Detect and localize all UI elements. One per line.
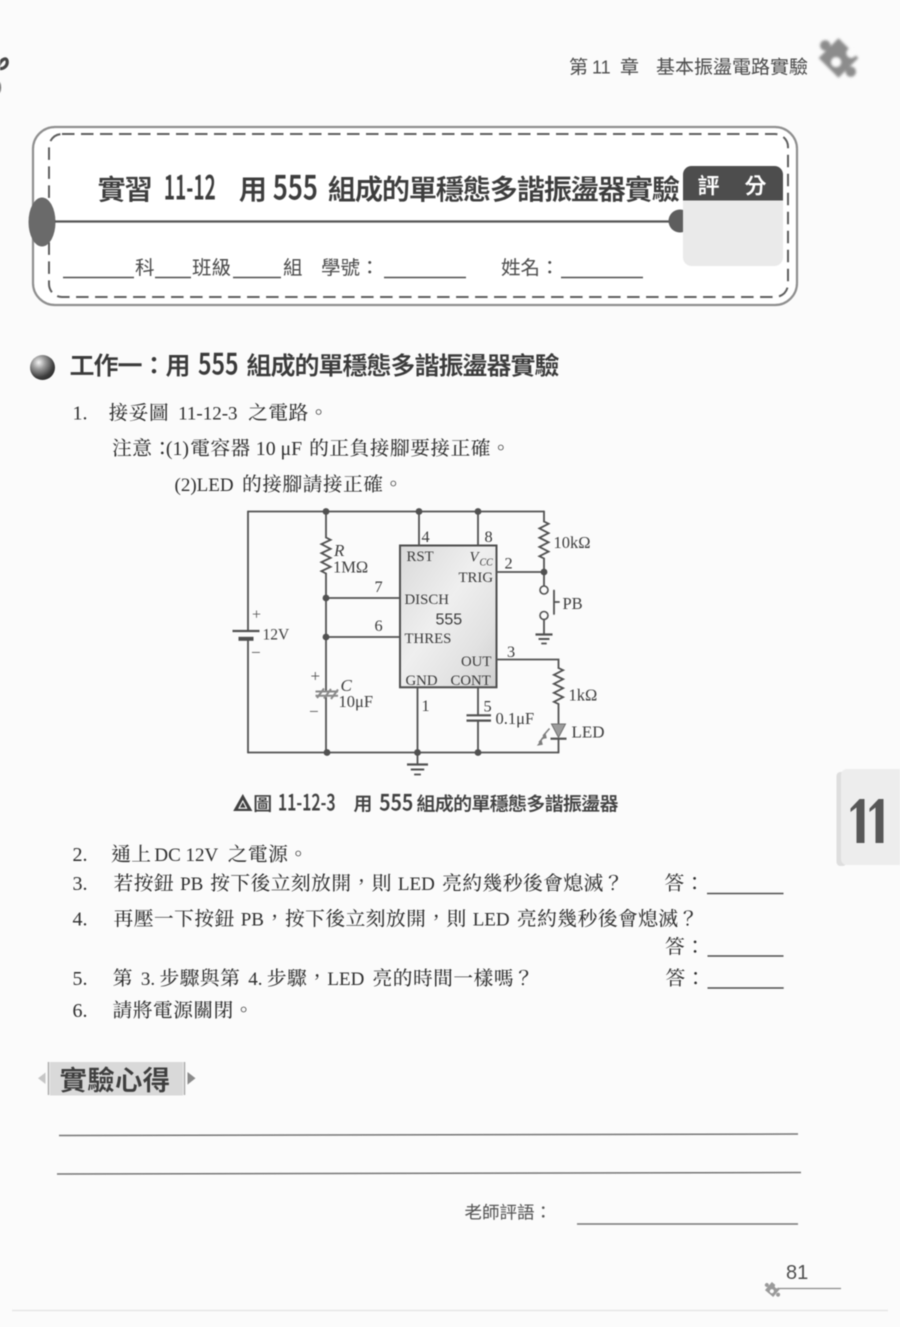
svg-text:DISCH: DISCH bbox=[405, 592, 450, 608]
svg-text:2: 2 bbox=[505, 554, 513, 573]
svg-text:DC 12V: DC 12V bbox=[154, 845, 218, 866]
svg-text:LED: LED bbox=[473, 910, 510, 931]
svg-text:TRIG: TRIG bbox=[459, 570, 494, 586]
svg-text:0.1μF: 0.1μF bbox=[496, 709, 535, 728]
svg-text:1MΩ: 1MΩ bbox=[333, 558, 368, 577]
svg-text:+: + bbox=[311, 667, 321, 686]
svg-text:−: − bbox=[309, 702, 319, 721]
svg-text:THRES: THRES bbox=[405, 631, 452, 647]
svg-text:555: 555 bbox=[436, 612, 463, 629]
svg-text:GND: GND bbox=[406, 673, 438, 689]
svg-text:LED: LED bbox=[327, 969, 364, 990]
svg-text:10μF: 10μF bbox=[339, 692, 374, 711]
svg-text:4: 4 bbox=[422, 527, 430, 546]
svg-text:6.: 6. bbox=[73, 1000, 88, 1022]
svg-text:(2)LED: (2)LED bbox=[175, 475, 234, 496]
svg-text:+: + bbox=[252, 607, 261, 624]
svg-text:1.: 1. bbox=[73, 403, 88, 425]
svg-text:4.: 4. bbox=[73, 909, 88, 931]
svg-text:LED: LED bbox=[398, 874, 435, 895]
svg-text:4.: 4. bbox=[248, 969, 262, 990]
svg-text:7: 7 bbox=[375, 577, 383, 596]
svg-text:RST: RST bbox=[407, 549, 434, 565]
svg-text:12V: 12V bbox=[263, 627, 291, 644]
svg-text:6: 6 bbox=[375, 616, 383, 635]
svg-text:(1): (1) bbox=[166, 438, 189, 460]
svg-text:3.: 3. bbox=[141, 969, 155, 990]
svg-text:11-12-3: 11-12-3 bbox=[178, 404, 237, 425]
svg-text:10 μF: 10 μF bbox=[256, 438, 302, 460]
svg-text:1: 1 bbox=[422, 696, 430, 715]
svg-text:3: 3 bbox=[507, 642, 515, 661]
svg-text:PB: PB bbox=[180, 874, 203, 895]
svg-text:CC: CC bbox=[480, 558, 494, 569]
svg-text:2.: 2. bbox=[73, 844, 88, 866]
svg-text:81: 81 bbox=[786, 1262, 808, 1284]
svg-text:CONT: CONT bbox=[451, 673, 491, 689]
svg-text:OUT: OUT bbox=[461, 654, 491, 670]
svg-text:10kΩ: 10kΩ bbox=[554, 533, 591, 552]
svg-text:11: 11 bbox=[592, 58, 611, 78]
svg-text:1kΩ: 1kΩ bbox=[569, 686, 598, 705]
svg-text:PB: PB bbox=[563, 594, 583, 613]
svg-text:8: 8 bbox=[485, 527, 493, 546]
svg-text:−: − bbox=[251, 643, 261, 662]
svg-text:3.: 3. bbox=[73, 873, 88, 895]
svg-text:5: 5 bbox=[484, 697, 492, 716]
svg-text:PB: PB bbox=[241, 910, 264, 931]
svg-text:LED: LED bbox=[572, 723, 605, 742]
svg-text:5.: 5. bbox=[73, 968, 88, 990]
